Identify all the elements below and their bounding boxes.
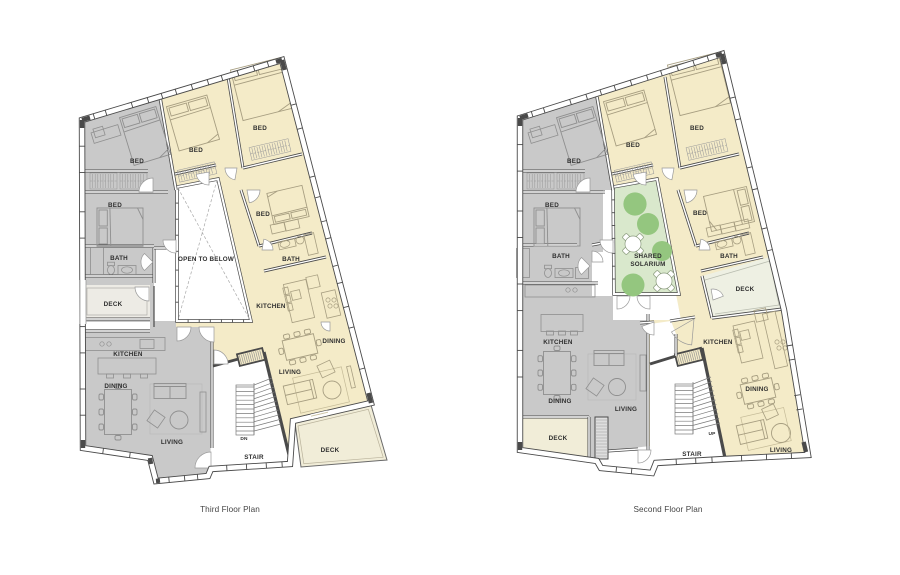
svg-text:KITCHEN: KITCHEN xyxy=(543,339,573,346)
svg-text:BED: BED xyxy=(189,147,203,154)
svg-text:BATH: BATH xyxy=(552,253,570,260)
svg-text:KITCHEN: KITCHEN xyxy=(113,351,143,358)
svg-text:BATH: BATH xyxy=(110,255,128,262)
svg-text:BATH: BATH xyxy=(720,253,738,260)
svg-text:BED: BED xyxy=(626,142,640,149)
svg-text:DINING: DINING xyxy=(322,338,345,345)
svg-text:LIVING: LIVING xyxy=(279,369,301,376)
svg-text:SOLARIUM: SOLARIUM xyxy=(630,261,665,268)
svg-text:LIVING: LIVING xyxy=(161,439,183,446)
svg-text:DECK: DECK xyxy=(736,286,755,293)
svg-text:LIVING: LIVING xyxy=(770,447,792,454)
svg-text:BED: BED xyxy=(690,125,704,132)
svg-text:DECK: DECK xyxy=(549,435,568,442)
svg-text:BED: BED xyxy=(545,202,559,209)
svg-text:UP: UP xyxy=(708,431,716,437)
svg-text:KITCHEN: KITCHEN xyxy=(256,303,286,310)
svg-text:DECK: DECK xyxy=(321,447,340,454)
svg-text:STAIR: STAIR xyxy=(244,454,264,461)
svg-text:BED: BED xyxy=(256,211,270,218)
svg-text:STAIR: STAIR xyxy=(682,451,702,458)
svg-text:KITCHEN: KITCHEN xyxy=(703,339,733,346)
svg-text:Third Floor Plan: Third Floor Plan xyxy=(200,505,260,514)
svg-text:DECK: DECK xyxy=(104,301,123,308)
svg-text:DINING: DINING xyxy=(745,386,768,393)
svg-text:LIVING: LIVING xyxy=(615,406,637,413)
svg-text:SHARED: SHARED xyxy=(634,253,662,260)
svg-text:DN: DN xyxy=(240,436,248,442)
svg-text:BED: BED xyxy=(108,202,122,209)
svg-text:Second Floor Plan: Second Floor Plan xyxy=(633,505,702,514)
svg-text:BED: BED xyxy=(130,158,144,165)
svg-text:DINING: DINING xyxy=(104,383,127,390)
svg-text:BED: BED xyxy=(567,158,581,165)
svg-text:DINING: DINING xyxy=(548,398,571,405)
svg-text:BATH: BATH xyxy=(282,256,300,263)
svg-text:OPEN TO BELOW: OPEN TO BELOW xyxy=(178,256,234,263)
svg-text:BED: BED xyxy=(253,125,267,132)
svg-text:BED: BED xyxy=(693,210,707,217)
